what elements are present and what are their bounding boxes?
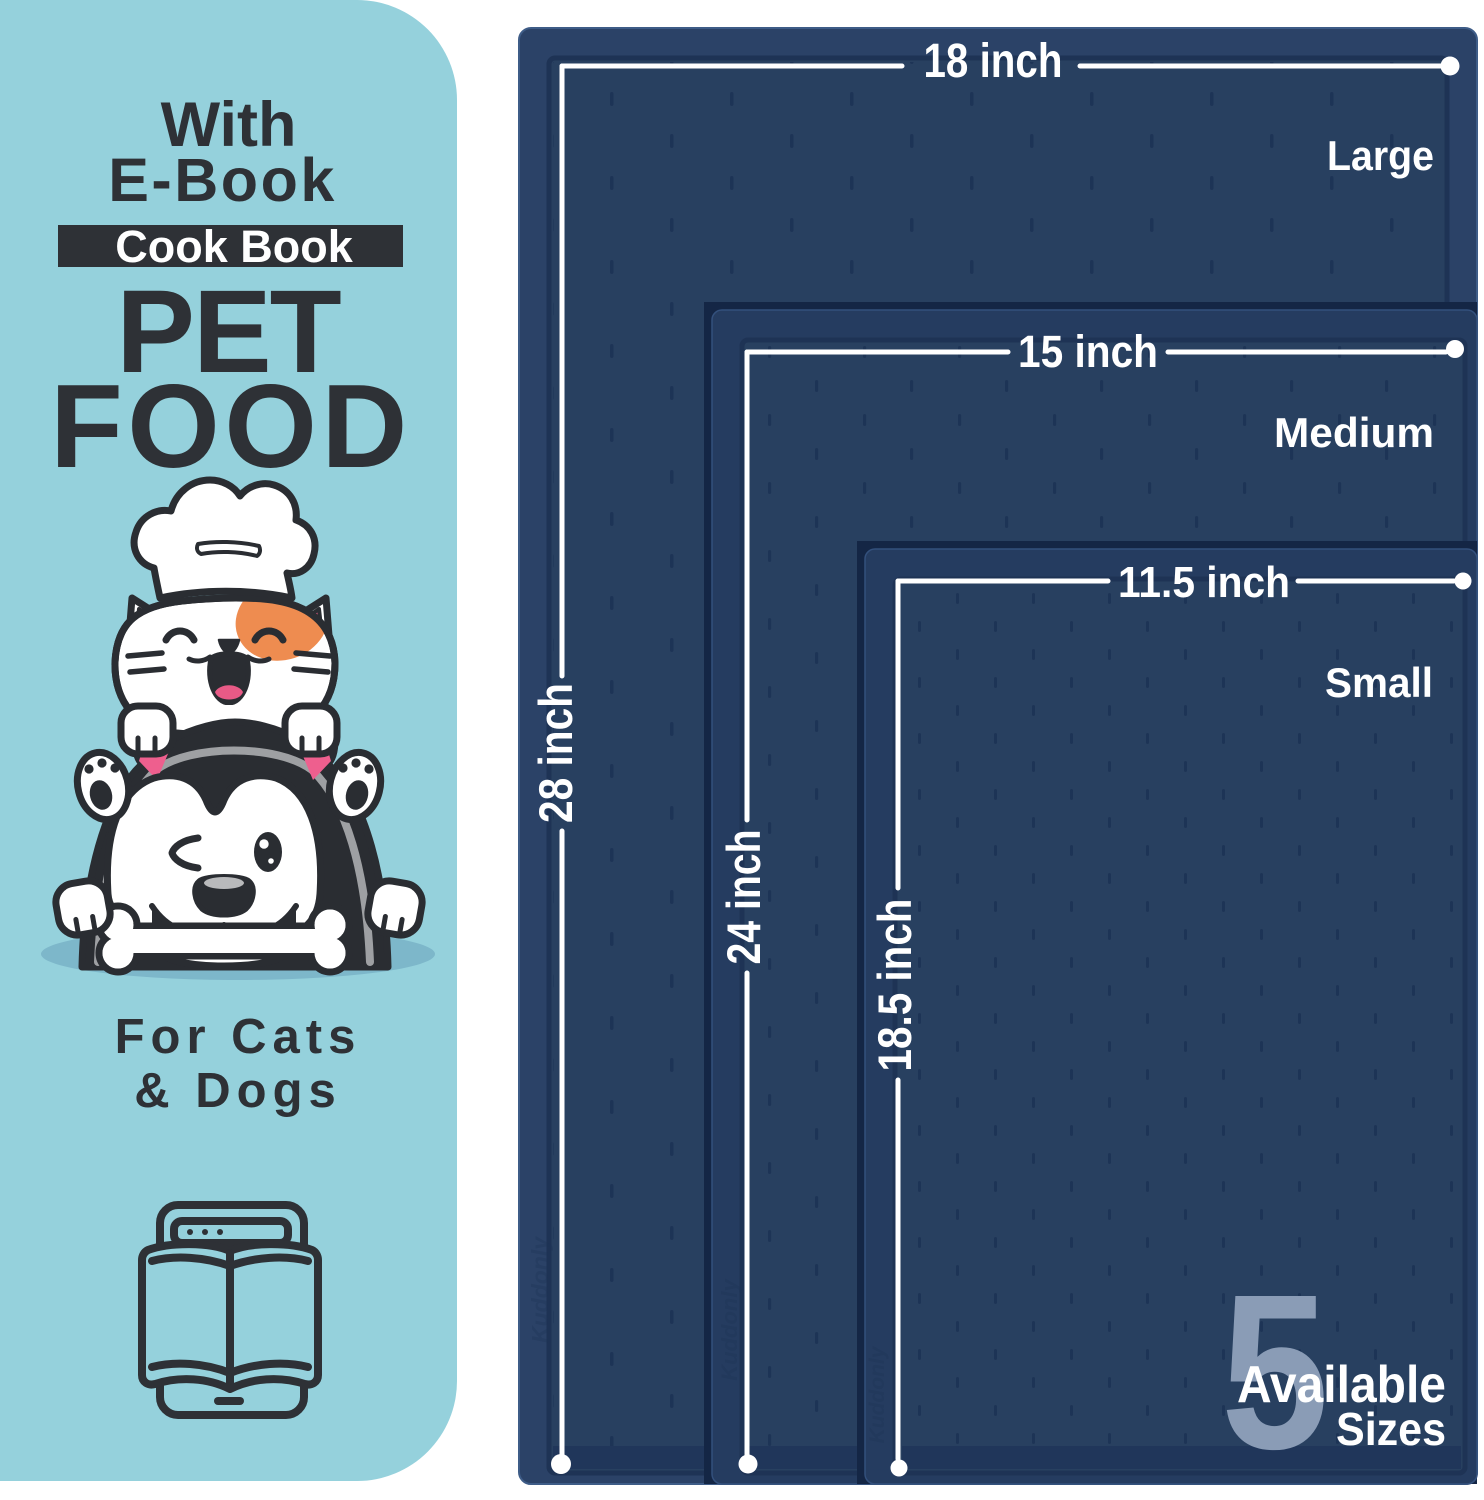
svg-text:Medium: Medium — [1274, 409, 1434, 456]
svg-text:18.5 inch: 18.5 inch — [868, 899, 921, 1072]
svg-text:18 inch: 18 inch — [924, 35, 1063, 88]
svg-text:15 inch: 15 inch — [1018, 326, 1158, 377]
svg-text:Kuddonly: Kuddonly — [866, 1345, 889, 1443]
svg-text:Sizes: Sizes — [1336, 1403, 1446, 1455]
svg-text:Small: Small — [1325, 659, 1433, 706]
svg-text:24 inch: 24 inch — [717, 830, 770, 965]
svg-text:Kuddonly: Kuddonly — [717, 1278, 742, 1381]
svg-text:Kuddonly: Kuddonly — [527, 1236, 553, 1343]
svg-text:28 inch: 28 inch — [529, 683, 582, 823]
svg-text:Large: Large — [1327, 132, 1434, 179]
svg-text:11.5 inch: 11.5 inch — [1118, 558, 1290, 607]
